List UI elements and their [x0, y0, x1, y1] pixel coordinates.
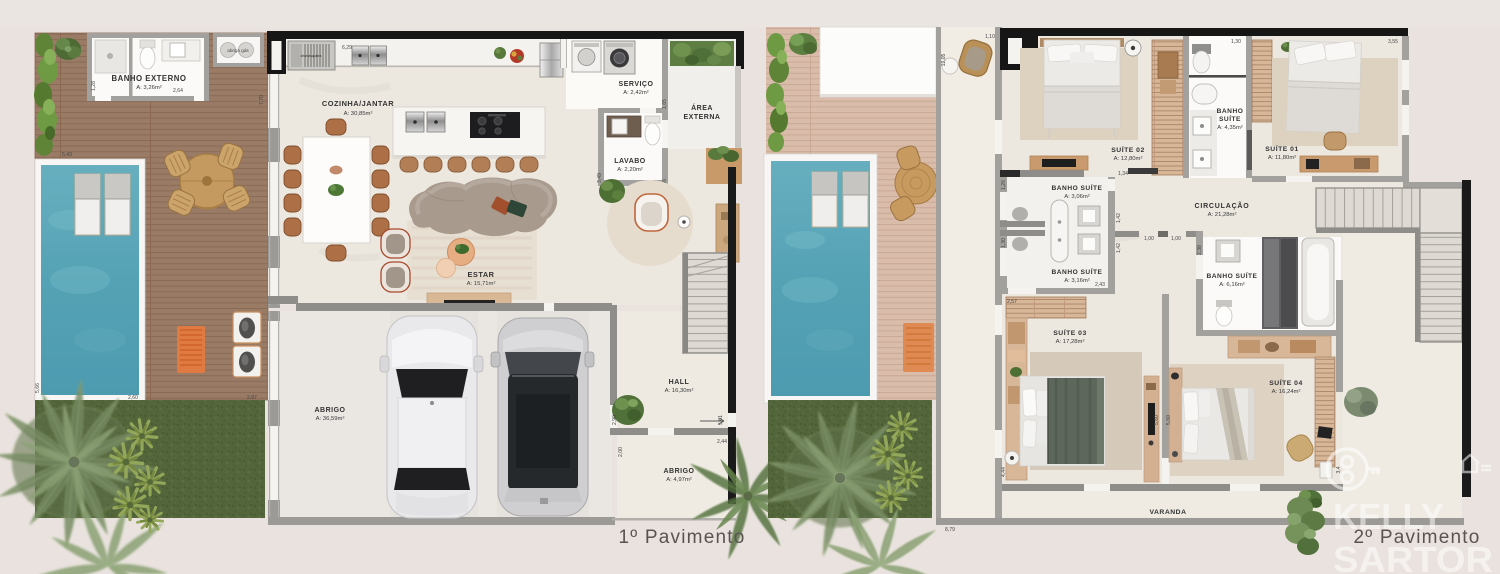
svg-text:A: 16,24m²: A: 16,24m²: [1272, 389, 1301, 395]
svg-text:1,28: 1,28: [91, 81, 97, 91]
svg-text:2,38: 2,38: [1197, 245, 1203, 255]
svg-text:1,42: 1,42: [1116, 243, 1122, 253]
svg-text:ABRIGO: ABRIGO: [315, 407, 346, 414]
svg-text:BANHO EXTERNO: BANHO EXTERNO: [112, 74, 187, 83]
svg-text:A: 21,28m²: A: 21,28m²: [1208, 212, 1237, 218]
svg-text:ÁREA: ÁREA: [691, 103, 713, 112]
svg-text:2,90: 2,90: [612, 415, 618, 425]
svg-text:A: 4,35m²: A: 4,35m²: [1217, 125, 1243, 131]
svg-text:5,61: 5,61: [718, 415, 724, 425]
svg-text:1,30: 1,30: [1231, 39, 1241, 45]
svg-text:A: 4,97m²: A: 4,97m²: [666, 477, 692, 483]
svg-text:5,66: 5,66: [35, 383, 41, 393]
svg-text:1,00: 1,00: [1171, 236, 1181, 242]
svg-text:CIRCULAÇÃO: CIRCULAÇÃO: [1194, 201, 1249, 210]
svg-text:SUÍTE: SUÍTE: [1219, 114, 1241, 123]
svg-text:A: 3,16m²: A: 3,16m²: [1064, 278, 1090, 284]
svg-text:5,60: 5,60: [1154, 415, 1160, 425]
svg-text:2,44: 2,44: [717, 439, 727, 445]
svg-text:BANHO: BANHO: [1217, 108, 1244, 115]
svg-text:BANHO SUÍTE: BANHO SUÍTE: [1052, 267, 1103, 276]
svg-text:1,42: 1,42: [1116, 213, 1122, 223]
svg-text:1º Pavimento: 1º Pavimento: [619, 527, 746, 548]
svg-text:A: 3,26m²: A: 3,26m²: [136, 85, 162, 91]
svg-text:3,49: 3,49: [597, 173, 603, 183]
svg-text:2,57: 2,57: [1007, 299, 1017, 305]
svg-text:A: 2,42m²: A: 2,42m²: [623, 90, 649, 96]
svg-text:1,10: 1,10: [985, 34, 995, 40]
svg-text:VARANDA: VARANDA: [1150, 509, 1187, 516]
svg-text:SUÍTE 03: SUÍTE 03: [1053, 328, 1086, 337]
svg-text:A: 12,80m²: A: 12,80m²: [1114, 156, 1143, 162]
svg-text:BANHO SUÍTE: BANHO SUÍTE: [1052, 183, 1103, 192]
svg-text:A: 6,16m²: A: 6,16m²: [1219, 282, 1245, 288]
svg-text:A: 16,30m²: A: 16,30m²: [665, 388, 694, 394]
svg-text:5,60: 5,60: [1166, 415, 1172, 425]
svg-text:3,55: 3,55: [1388, 39, 1398, 45]
svg-text:A: 17,28m²: A: 17,28m²: [1056, 339, 1085, 345]
svg-text:A: 36,59m²: A: 36,59m²: [316, 416, 345, 422]
svg-text:1,00: 1,00: [1144, 236, 1154, 242]
svg-text:EXTERNA: EXTERNA: [684, 114, 721, 121]
svg-text:SERVIÇO: SERVIÇO: [619, 81, 654, 88]
svg-text:SUÍTE 01: SUÍTE 01: [1265, 144, 1298, 153]
svg-text:2,60: 2,60: [128, 395, 138, 401]
svg-text:1,34: 1,34: [1118, 171, 1128, 177]
svg-text:churrasqueira: churrasqueira: [301, 54, 322, 58]
svg-text:A: 30,85m²: A: 30,85m²: [344, 111, 373, 117]
svg-text:SUÍTE 02: SUÍTE 02: [1111, 145, 1144, 154]
svg-text:2º Pavimento: 2º Pavimento: [1354, 527, 1481, 548]
svg-text:ABRIGO: ABRIGO: [664, 468, 695, 475]
svg-text:12,05: 12,05: [941, 53, 947, 66]
svg-text:BANHO SUÍTE: BANHO SUÍTE: [1207, 271, 1258, 280]
svg-text:A: 3,06m²: A: 3,06m²: [1064, 194, 1090, 200]
svg-text:4,44: 4,44: [1001, 467, 1007, 477]
svg-text:8,79: 8,79: [945, 527, 955, 533]
svg-text:2,43: 2,43: [1095, 282, 1105, 288]
svg-text:HALL: HALL: [669, 379, 690, 386]
svg-text:2,64: 2,64: [173, 88, 183, 94]
svg-text:6,29: 6,29: [342, 45, 352, 51]
svg-text:1,30: 1,30: [1001, 238, 1007, 248]
svg-text:2,87: 2,87: [247, 395, 257, 401]
svg-text:1,65: 1,65: [662, 99, 668, 109]
svg-text:7,70: 7,70: [259, 95, 265, 105]
svg-text:3,4: 3,4: [1336, 466, 1342, 473]
svg-text:LAVABO: LAVABO: [614, 158, 646, 165]
svg-text:2,00: 2,00: [618, 447, 624, 457]
svg-text:ESTAR: ESTAR: [468, 270, 495, 279]
svg-text:5,43: 5,43: [62, 152, 72, 158]
svg-text:A: 11,80m²: A: 11,80m²: [1268, 155, 1296, 161]
svg-text:SUÍTE 04: SUÍTE 04: [1269, 378, 1302, 387]
svg-text:COZINHA/JANTAR: COZINHA/JANTAR: [322, 99, 394, 108]
svg-text:A: 2,20m²: A: 2,20m²: [617, 167, 643, 173]
svg-text:A: 15,71m²: A: 15,71m²: [467, 281, 496, 287]
svg-text:abrigo gás: abrigo gás: [227, 48, 249, 53]
svg-text:1,26: 1,26: [1001, 180, 1007, 190]
